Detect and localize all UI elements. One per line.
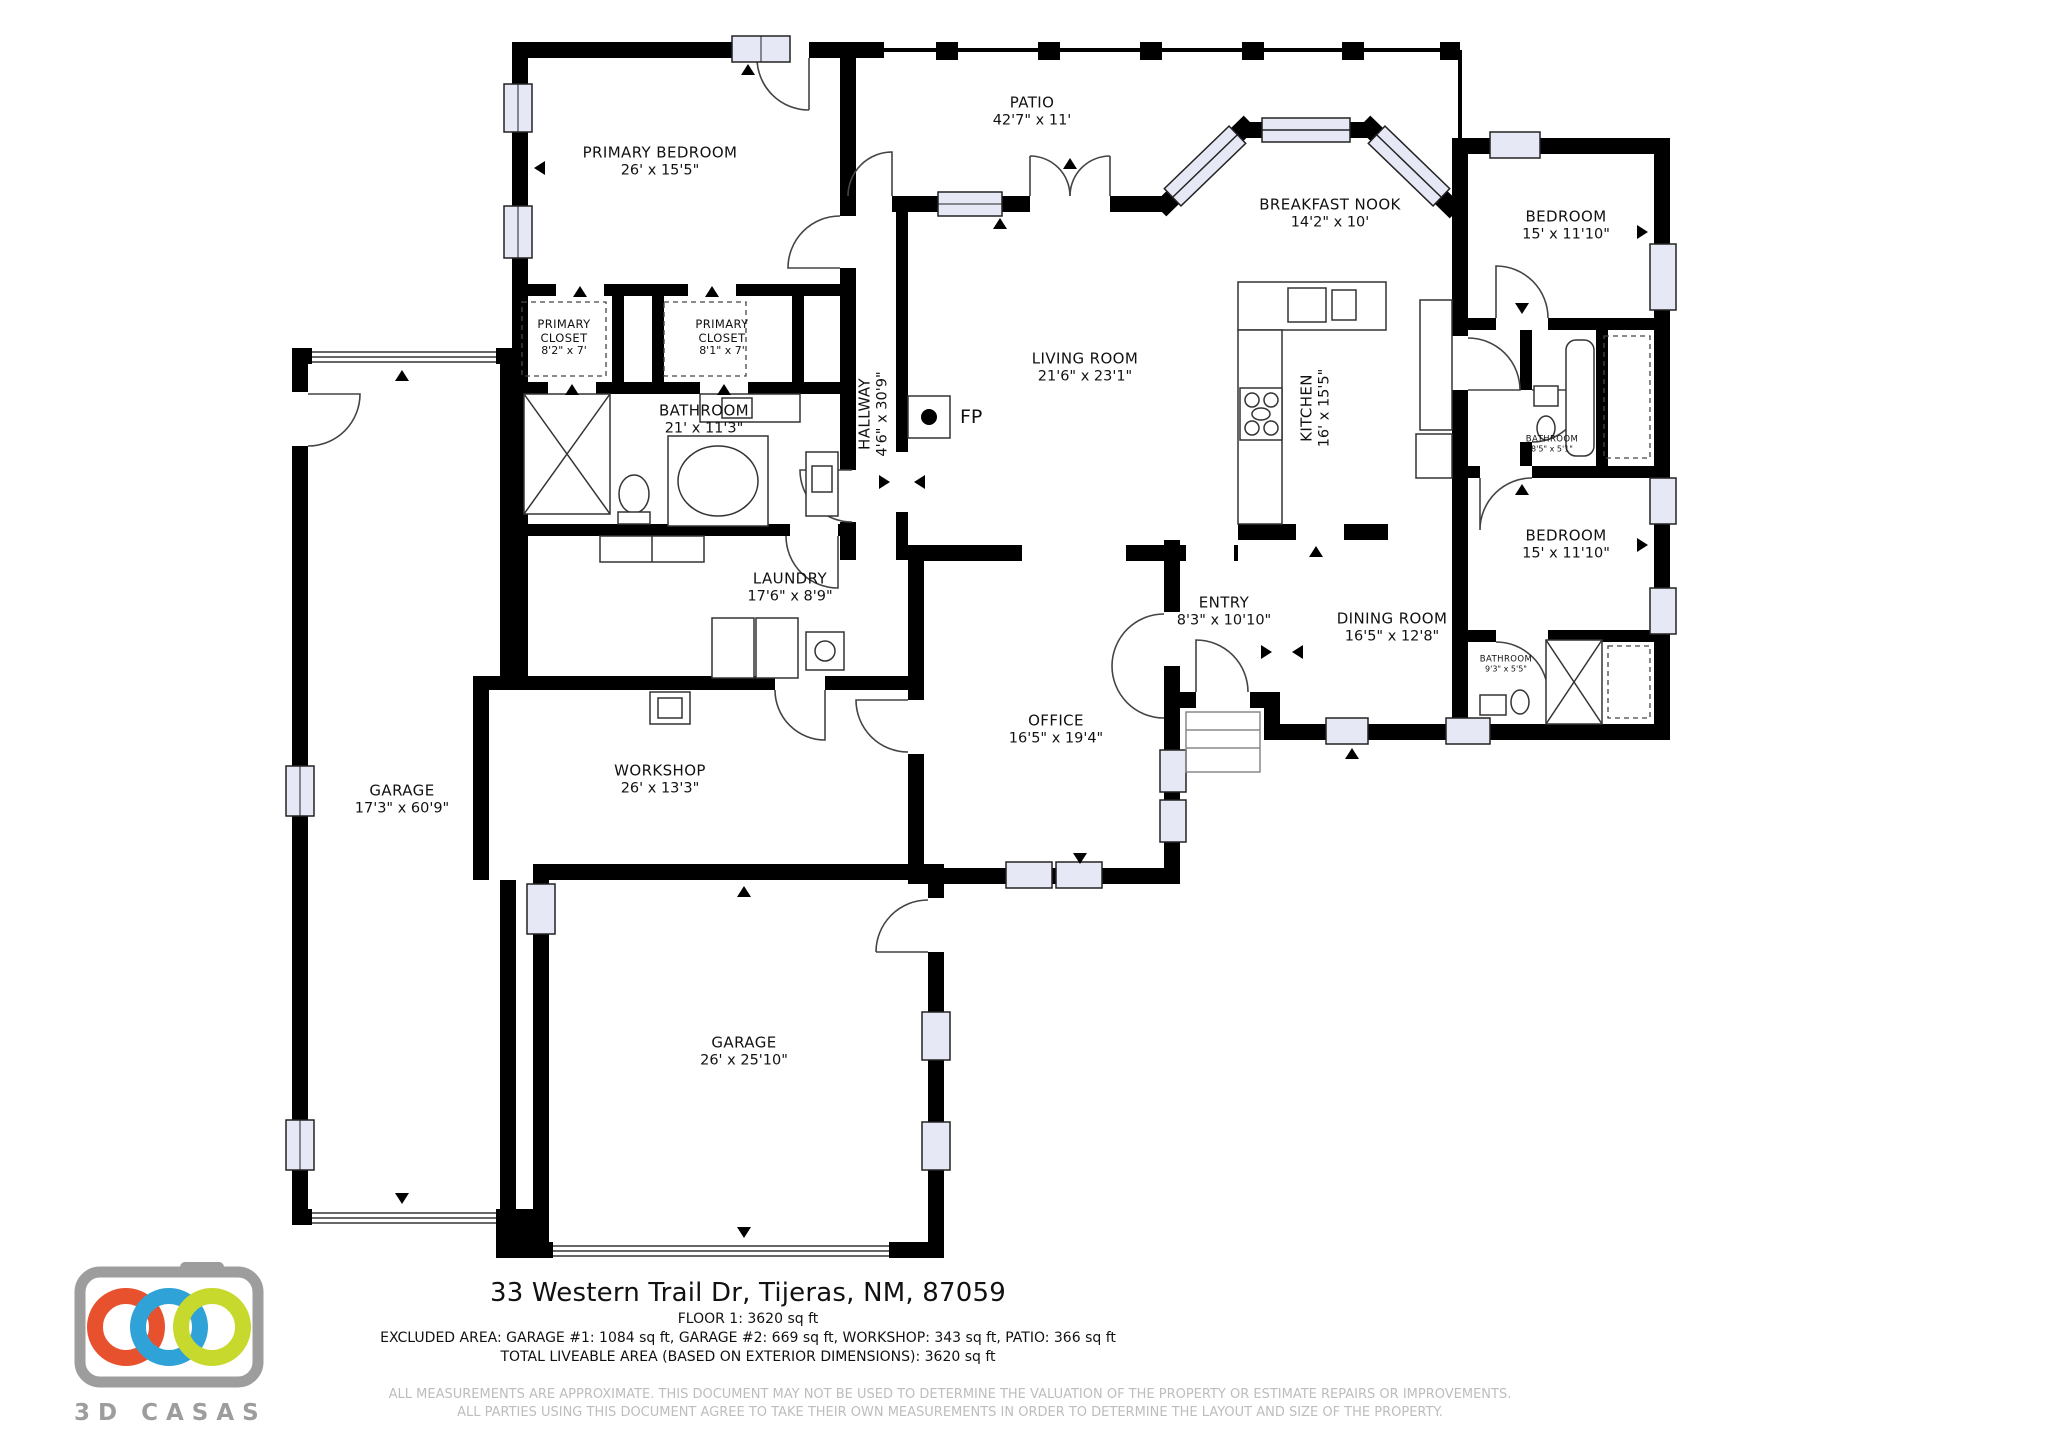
company-logo: 3D CASAS	[74, 1262, 264, 1426]
toilet-icon	[618, 475, 650, 524]
room-label-patio: PATIO42'7" x 11'	[993, 95, 1072, 130]
disclaimer-line-1: ALL MEASUREMENTS ARE APPROXIMATE. THIS D…	[389, 1386, 1512, 1404]
disclaimer: ALL MEASUREMENTS ARE APPROXIMATE. THIS D…	[389, 1386, 1512, 1421]
room-label-living-room: LIVING ROOM21'6" x 23'1"	[1032, 351, 1138, 386]
room-label-primary-closet-2: PRIMARY CLOSET8'1" x 7'	[670, 318, 774, 358]
room-label-office: OFFICE16'5" x 19'4"	[1009, 713, 1103, 748]
room-label-dining-room: DINING ROOM16'5" x 12'8"	[1337, 611, 1448, 646]
room-label-entry: ENTRY8'3" x 10'10"	[1177, 595, 1271, 630]
room-label-hallway: HALLWAY4'6" x 30'9"	[857, 371, 892, 456]
porch	[1186, 712, 1260, 772]
room-label-garage-1: GARAGE17'3" x 60'9"	[355, 783, 449, 818]
shower-icon	[524, 394, 610, 514]
room-label-bedroom-1: BEDROOM15' x 11'10"	[1522, 209, 1610, 244]
fireplace-label: FP	[960, 406, 982, 428]
room-label-laundry: LAUNDRY17'6" x 8'9"	[747, 571, 832, 606]
room-label-primary-closet-1: PRIMARY CLOSET8'2" x 7'	[512, 318, 616, 358]
total-area-line: TOTAL LIVEABLE AREA (BASED ON EXTERIOR D…	[380, 1349, 1116, 1365]
footer: 33 Western Trail Dr, Tijeras, NM, 87059 …	[380, 1278, 1116, 1365]
stove-icon	[1240, 388, 1282, 440]
room-label-kitchen: KITCHEN16' x 15'5"	[1299, 369, 1334, 448]
property-address: 33 Western Trail Dr, Tijeras, NM, 87059	[380, 1278, 1116, 1308]
excluded-area-line: EXCLUDED AREA: GARAGE #1: 1084 sq ft, GA…	[380, 1330, 1116, 1346]
disclaimer-line-2: ALL PARTIES USING THIS DOCUMENT AGREE TO…	[389, 1404, 1512, 1422]
fireplace-icon	[908, 396, 950, 438]
room-label-breakfast-nook: BREAKFAST NOOK14'2" x 10'	[1259, 197, 1401, 232]
room-label-bathroom-2: BATHROOM8'5" x 5'1"	[1526, 434, 1578, 453]
camera-logo-icon	[74, 1262, 264, 1390]
washer-dryer-icon	[600, 536, 844, 678]
room-label-workshop: WORKSHOP26' x 13'3"	[614, 763, 706, 798]
kitchen-island-icon	[1238, 282, 1386, 330]
room-label-bathroom-3: BATHROOM9'3" x 5'5"	[1480, 654, 1532, 673]
shower-icon-2	[1546, 640, 1602, 724]
logo-text: 3D CASAS	[74, 1400, 264, 1426]
room-label-bedroom-2: BEDROOM15' x 11'10"	[1522, 528, 1610, 563]
walls	[292, 42, 1670, 1258]
floor-area-line: FLOOR 1: 3620 sq ft	[380, 1311, 1116, 1327]
bathtub-icon	[668, 436, 768, 526]
floor-plan-page: PRIMARY BEDROOM26' x 15'5" PATIO42'7" x …	[0, 0, 2048, 1448]
room-label-bathroom-1: BATHROOM21' x 11'3"	[659, 403, 749, 438]
room-label-primary-bedroom: PRIMARY BEDROOM26' x 15'5"	[583, 145, 738, 180]
room-label-garage-2: GARAGE26' x 25'10"	[700, 1035, 788, 1070]
